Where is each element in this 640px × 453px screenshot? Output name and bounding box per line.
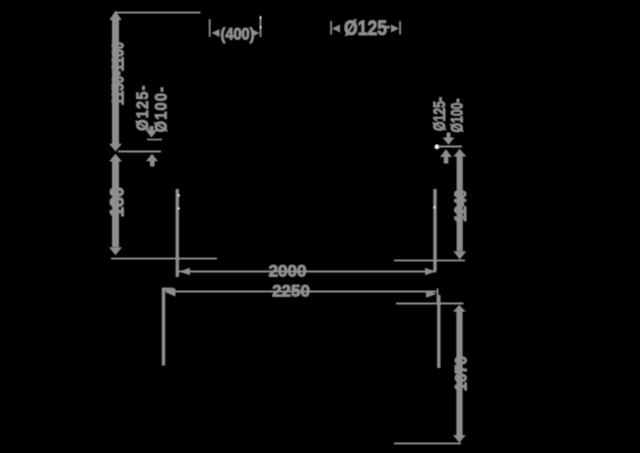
svg-text:Ø125-: Ø125- <box>134 84 152 131</box>
svg-text:Ø125-: Ø125- <box>431 97 449 131</box>
svg-text:2000: 2000 <box>269 262 307 281</box>
svg-text:1070: 1070 <box>452 356 471 391</box>
svg-text:2250: 2250 <box>272 282 310 301</box>
svg-text:Ø100-: Ø100- <box>152 86 170 133</box>
svg-text:180: 180 <box>106 187 128 217</box>
svg-text:1150-1160: 1150-1160 <box>109 42 128 105</box>
svg-text:(400): (400) <box>221 26 255 44</box>
svg-text:1240: 1240 <box>452 190 470 222</box>
svg-text:Ø125: Ø125 <box>344 17 387 40</box>
svg-text:Ø100-: Ø100- <box>449 98 467 132</box>
